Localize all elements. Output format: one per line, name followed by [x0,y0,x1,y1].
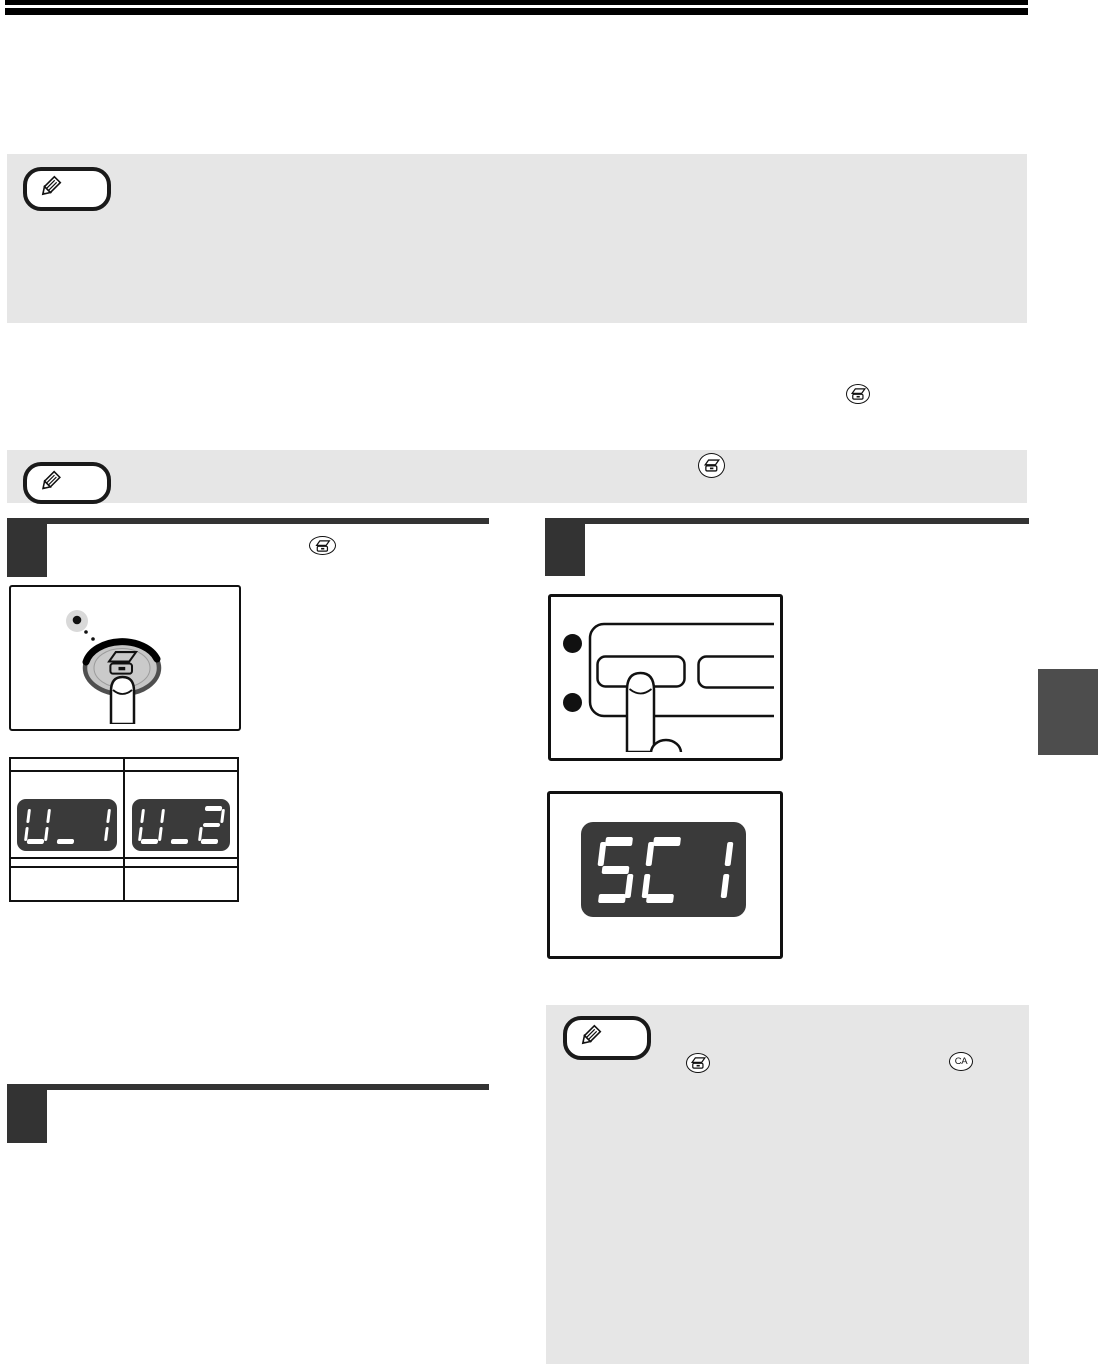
scan-key-icon [309,536,336,555]
pointing-finger [627,673,654,752]
step-2-number-box [545,518,585,576]
note-badge [563,1016,651,1060]
seven-seg-display-u1 [17,799,117,851]
table-divider-vertical [123,759,125,900]
seven-seg-digit [23,806,51,844]
step-1-number-box [7,518,47,577]
pointing-finger [111,677,134,724]
seven-seg-display-sc1 [581,822,746,917]
scan-key-icon [846,384,870,404]
clear-all-key-icon: CA [949,1052,973,1071]
scan-key-icon [698,453,725,478]
pencil-icon [30,470,66,497]
seven-seg-display-u2 [132,799,230,851]
seven-seg-digit [137,806,165,844]
table-divider-bottom1 [11,857,237,859]
note-callout-2 [7,450,1027,503]
panel-led-2 [563,693,582,712]
clear-all-key-label: CA [955,1057,968,1067]
seven-seg-digit [197,806,225,844]
note-callout-1 [7,154,1027,323]
scan-button-figure [9,585,241,731]
header-rule-top [5,0,1028,5]
scan-button-illustration [11,587,234,724]
seven-seg-digit [83,806,111,844]
step-3-number-box [7,1084,47,1143]
table-divider-top [11,770,237,772]
pencil-icon [30,175,66,203]
step-1-heading-rule [7,518,489,524]
panel-key-right [699,657,775,688]
seven-seg-digit [593,837,638,903]
pencil-icon [570,1024,606,1052]
note-badge [23,462,111,504]
panel-led-1 [563,634,582,653]
header-rule-bottom [5,8,1028,15]
seven-seg-digit [167,806,195,844]
step-3-heading-rule [7,1084,489,1090]
manual-page: CA [0,0,1112,1364]
seven-seg-digit [689,837,734,903]
thumb [651,740,681,752]
chapter-side-tab [1038,669,1098,755]
seven-seg-digit [641,837,686,903]
seven-seg-digit [53,806,81,844]
user-display-figure [9,757,239,902]
note-badge [23,167,111,211]
step-2-heading-rule [545,518,1029,524]
operation-panel-illustration [551,597,774,752]
table-divider-bottom2 [11,866,237,868]
error-display-figure [547,791,783,959]
operation-panel-figure [548,594,783,761]
scan-key-icon [686,1053,710,1073]
